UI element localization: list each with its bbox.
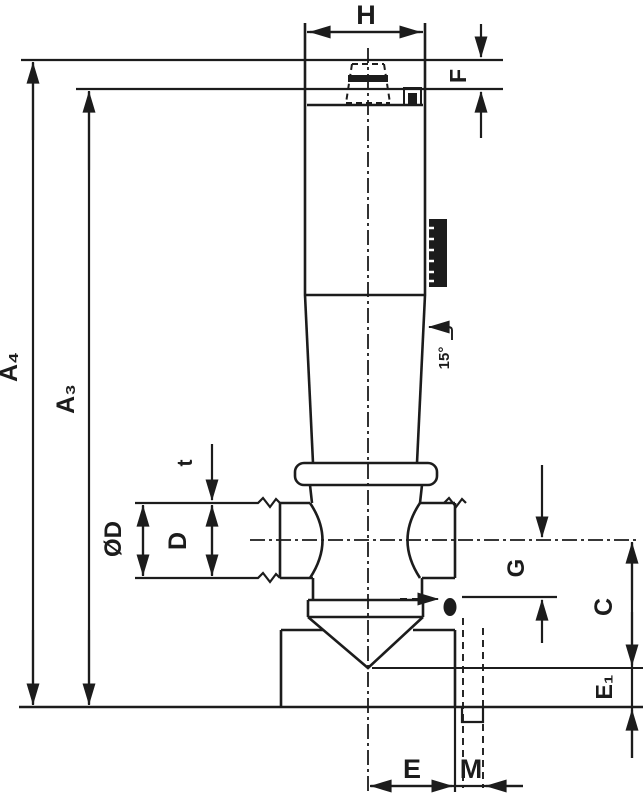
dim-label-od: ØD [100,521,127,557]
dim-label-m: M [460,754,483,784]
dim-label-g: G [503,559,530,578]
dim-label-d: D [164,532,192,550]
ext-line-thread-bottom-left [135,573,280,582]
extension-lines [19,60,643,792]
dim-label-e: E [403,754,421,784]
dim-label-e1: E₁ [591,675,617,700]
dim-label-c: C [590,598,618,616]
neck-edges [310,485,422,503]
centerlines [250,48,640,793]
cone-edges [308,617,423,668]
dim-label-a3: A₃ [52,384,80,414]
shank-taper-right [417,295,425,463]
part-collar [295,463,437,485]
taper-angle-leader [429,327,452,340]
knurl-patch [429,219,447,287]
top-slot-fill [408,93,417,105]
oring-section [444,598,457,616]
dim-label-h: H [356,0,376,30]
bottom-key [462,708,483,722]
top-boss-band [348,75,388,82]
ext-line-thread-top-left [135,498,280,507]
dim-label-f: F [445,69,471,83]
shank-taper-left [305,295,313,463]
dim-label-t: t [174,460,197,467]
part-outline [280,23,483,722]
technical-drawing: H F A₄ A₃ t ØD D G C E₁ E M 15° [0,0,644,800]
dim-label-angle: 15° [436,347,453,370]
dim-label-a4: A₄ [0,352,23,382]
ring-edges [308,600,423,617]
drawing-canvas: H F A₄ A₃ t ØD D G C E₁ E M 15° [0,0,644,800]
dimension-lines [33,24,632,786]
